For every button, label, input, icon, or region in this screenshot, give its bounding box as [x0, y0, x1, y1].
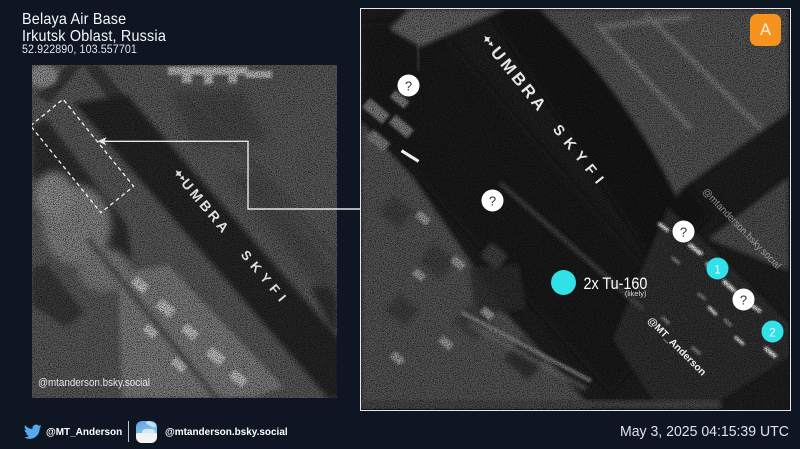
svg-text:?: ? — [489, 194, 496, 209]
svg-text:(likely): (likely) — [625, 289, 647, 298]
svg-text:?: ? — [740, 293, 747, 308]
svg-text:2: 2 — [769, 326, 776, 340]
svg-text:1: 1 — [714, 263, 721, 277]
svg-text:?: ? — [405, 79, 412, 94]
svg-text:?: ? — [680, 225, 687, 240]
